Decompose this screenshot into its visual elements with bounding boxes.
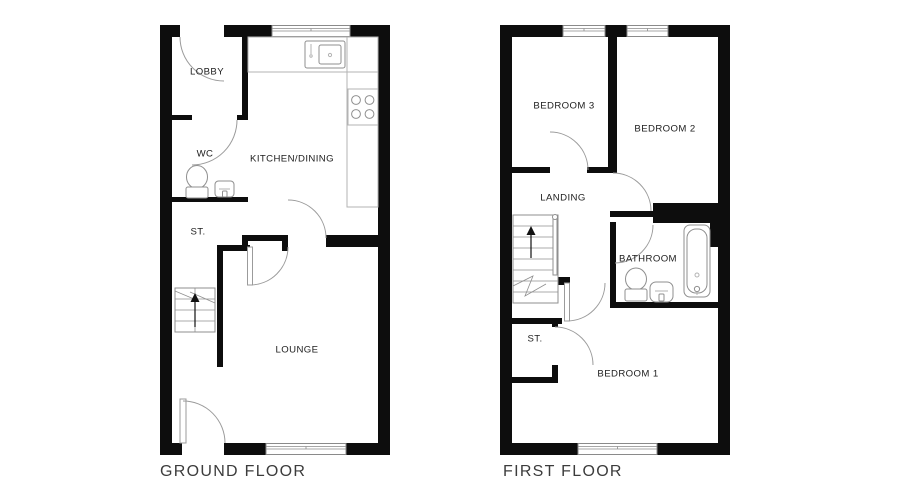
room-label-bathroom: BATHROOM (619, 254, 677, 265)
toilet-icon (625, 268, 647, 301)
kitchen-door-swing-icon (288, 200, 326, 238)
room-label-wc: WC (197, 149, 214, 160)
room-label-landing: LANDING (540, 193, 585, 204)
stairs-up-icon (513, 215, 558, 304)
room-label-bedroom2: BEDROOM 2 (634, 124, 695, 135)
store-door-swing-icon (555, 327, 593, 365)
floorplan-canvas: LOBBY WC KITCHEN/DINING ST. LOUNGE (0, 0, 901, 498)
first-floor-plan: BEDROOM 3 BEDROOM 2 LANDING BATHROOM ST.… (500, 25, 730, 455)
bathtub-icon (684, 225, 710, 297)
bedroom1-door-swing-icon (565, 283, 606, 321)
bedroom2-window-icon (627, 26, 668, 37)
room-label-store-ground: ST. (190, 227, 205, 238)
room-label-bedroom1: BEDROOM 1 (597, 369, 658, 380)
bedroom3-window-icon (563, 26, 605, 37)
ground-floor-title: GROUND FLOOR (160, 463, 306, 481)
lounge-window-icon (266, 444, 346, 455)
bedroom1-window-icon (578, 444, 657, 455)
bedroom3-door-swing-icon (550, 132, 588, 170)
toilet-icon (186, 166, 208, 199)
room-label-lounge: LOUNGE (276, 345, 319, 356)
stairs-up-icon (175, 288, 215, 332)
kitchen-sink-icon (305, 41, 345, 68)
kitchen-hob-icon (348, 89, 378, 125)
basin-icon (215, 181, 234, 197)
first-floor-title: FIRST FLOOR (503, 463, 623, 481)
bedroom2-door-swing-icon (613, 173, 651, 211)
basin-icon (650, 282, 673, 302)
first-interior-walls (512, 37, 718, 383)
room-label-bedroom3: BEDROOM 3 (533, 101, 594, 112)
rear-door-swing-icon (180, 399, 225, 443)
room-label-lobby: LOBBY (190, 67, 224, 78)
kitchen-window-icon (272, 26, 350, 37)
room-label-kitchen-dining: KITCHEN/DINING (250, 154, 334, 165)
ground-floor-plan: LOBBY WC KITCHEN/DINING ST. LOUNGE (160, 25, 390, 455)
lounge-door-swing-icon (248, 247, 289, 285)
room-label-store-first: ST. (527, 334, 542, 345)
